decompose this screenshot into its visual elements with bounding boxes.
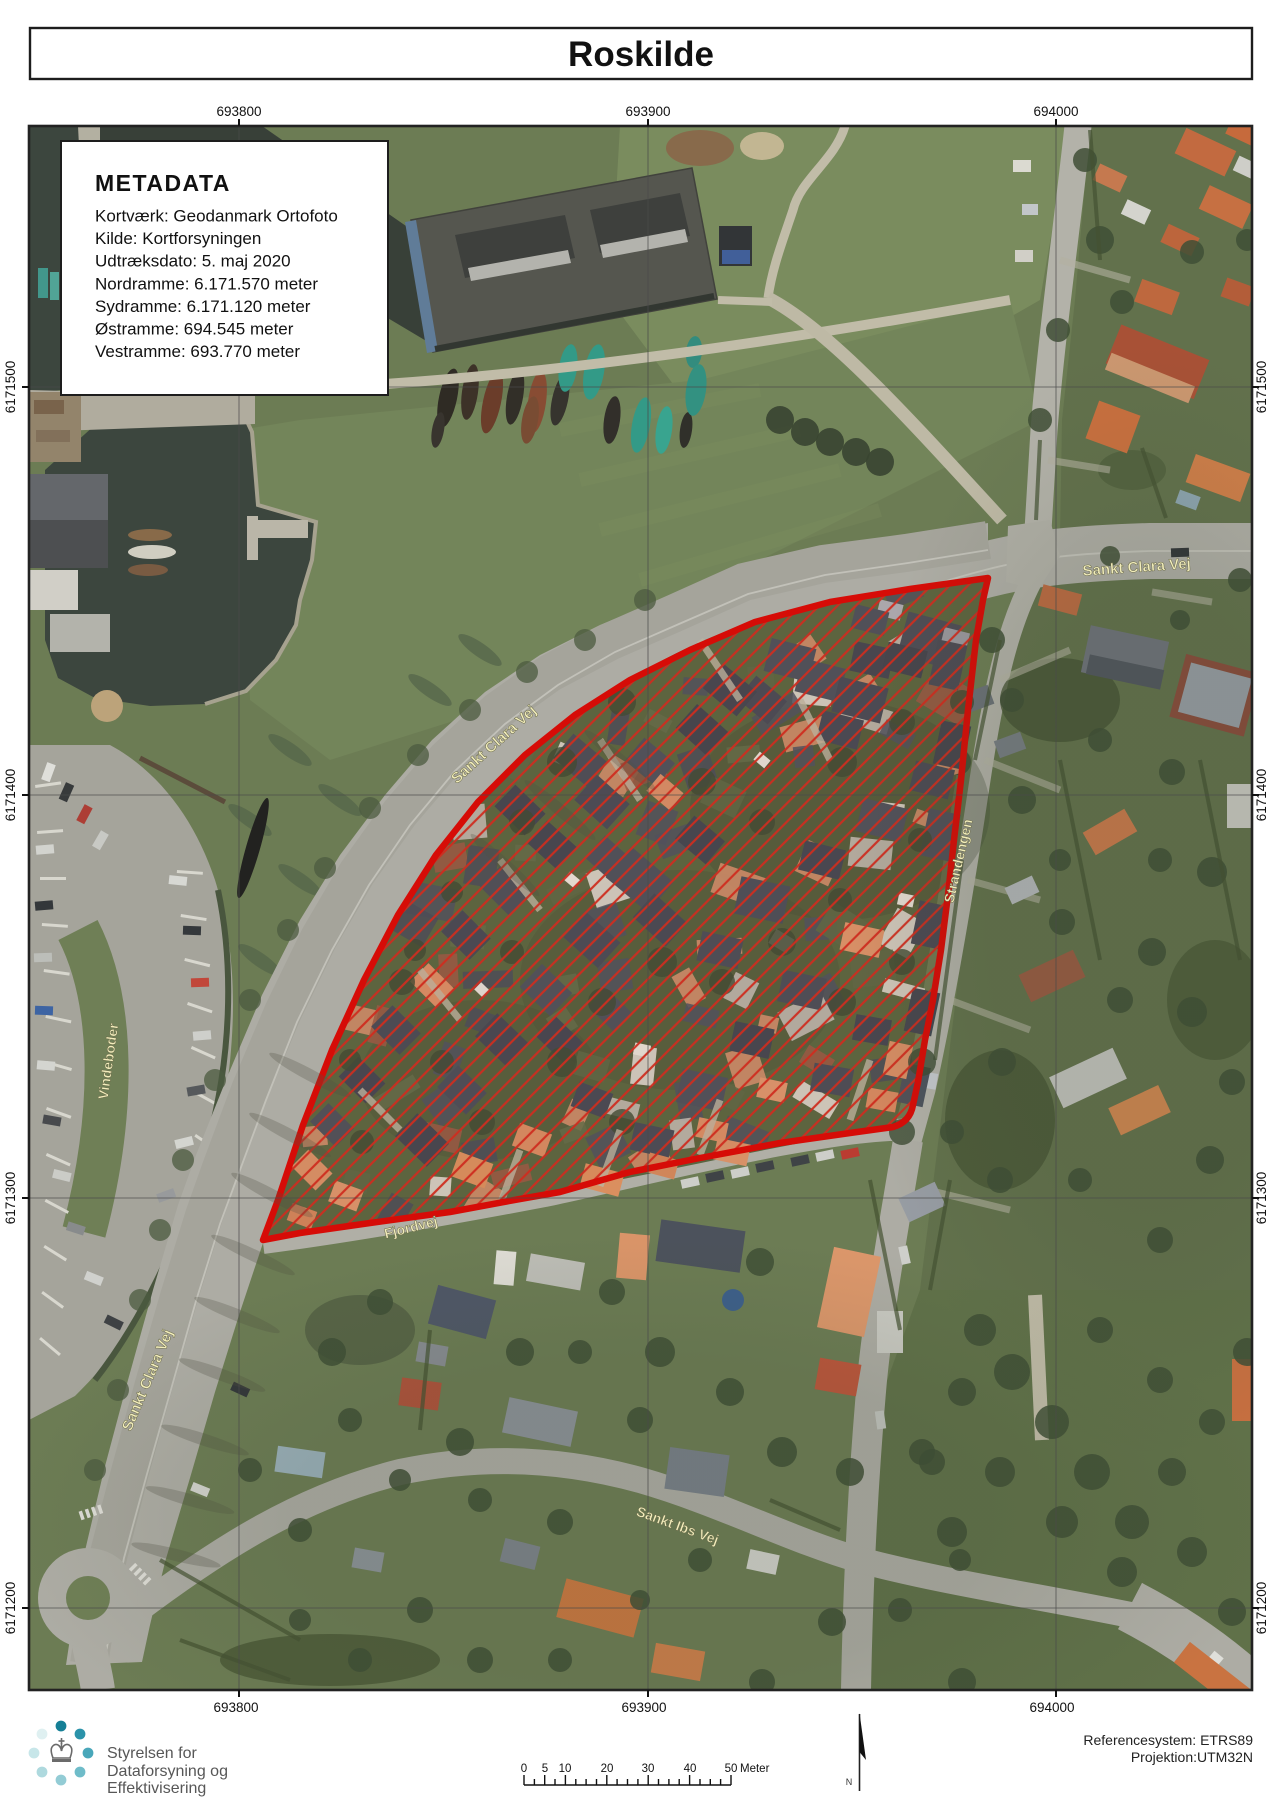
svg-text:Referencesystem: ETRS89: Referencesystem: ETRS89 (1083, 1732, 1253, 1748)
svg-text:694000: 694000 (1033, 104, 1078, 119)
svg-text:693900: 693900 (625, 104, 670, 119)
svg-text:50: 50 (725, 1763, 738, 1775)
svg-text:693800: 693800 (216, 104, 261, 119)
svg-text:5: 5 (542, 1763, 548, 1775)
svg-text:Dataforsyning og: Dataforsyning og (107, 1763, 228, 1780)
svg-text:Sydramme: 6.171.120 meter: Sydramme: 6.171.120 meter (95, 297, 311, 316)
svg-text:METADATA: METADATA (95, 170, 231, 196)
svg-text:6171300: 6171300 (1254, 1172, 1269, 1225)
svg-text:Kilde: Kortforsyningen: Kilde: Kortforsyningen (95, 229, 261, 248)
svg-text:Vestramme: 693.770 meter: Vestramme: 693.770 meter (95, 342, 300, 361)
svg-text:Styrelsen for: Styrelsen for (107, 1745, 197, 1762)
svg-text:0: 0 (521, 1763, 527, 1775)
svg-text:Meter: Meter (740, 1763, 770, 1775)
svg-text:N: N (846, 1777, 853, 1787)
svg-text:Projektion:UTM32N: Projektion:UTM32N (1131, 1749, 1253, 1765)
svg-text:694000: 694000 (1029, 1700, 1074, 1715)
svg-text:Udtræksdato: 5. maj 2020: Udtræksdato: 5. maj 2020 (95, 252, 291, 271)
svg-text:20: 20 (601, 1763, 614, 1775)
svg-text:6171400: 6171400 (1254, 769, 1269, 822)
svg-text:693800: 693800 (213, 1700, 258, 1715)
svg-text:6171300: 6171300 (3, 1172, 18, 1225)
svg-text:40: 40 (684, 1763, 697, 1775)
svg-text:Effektivisering: Effektivisering (107, 1780, 206, 1797)
svg-text:6171200: 6171200 (3, 1582, 18, 1635)
svg-text:693900: 693900 (621, 1700, 666, 1715)
svg-text:Roskilde: Roskilde (568, 35, 714, 74)
svg-text:6171500: 6171500 (1254, 361, 1269, 414)
svg-text:10: 10 (559, 1763, 572, 1775)
svg-text:30: 30 (642, 1763, 655, 1775)
svg-text:Nordramme: 6.171.570 meter: Nordramme: 6.171.570 meter (95, 274, 318, 293)
svg-text:6171500: 6171500 (3, 361, 18, 414)
svg-text:Kortværk: Geodanmark Ortofoto: Kortværk: Geodanmark Ortofoto (95, 207, 338, 226)
svg-text:6171400: 6171400 (3, 769, 18, 822)
svg-text:Østramme: 694.545 meter: Østramme: 694.545 meter (95, 320, 294, 339)
svg-text:6171200: 6171200 (1254, 1582, 1269, 1635)
